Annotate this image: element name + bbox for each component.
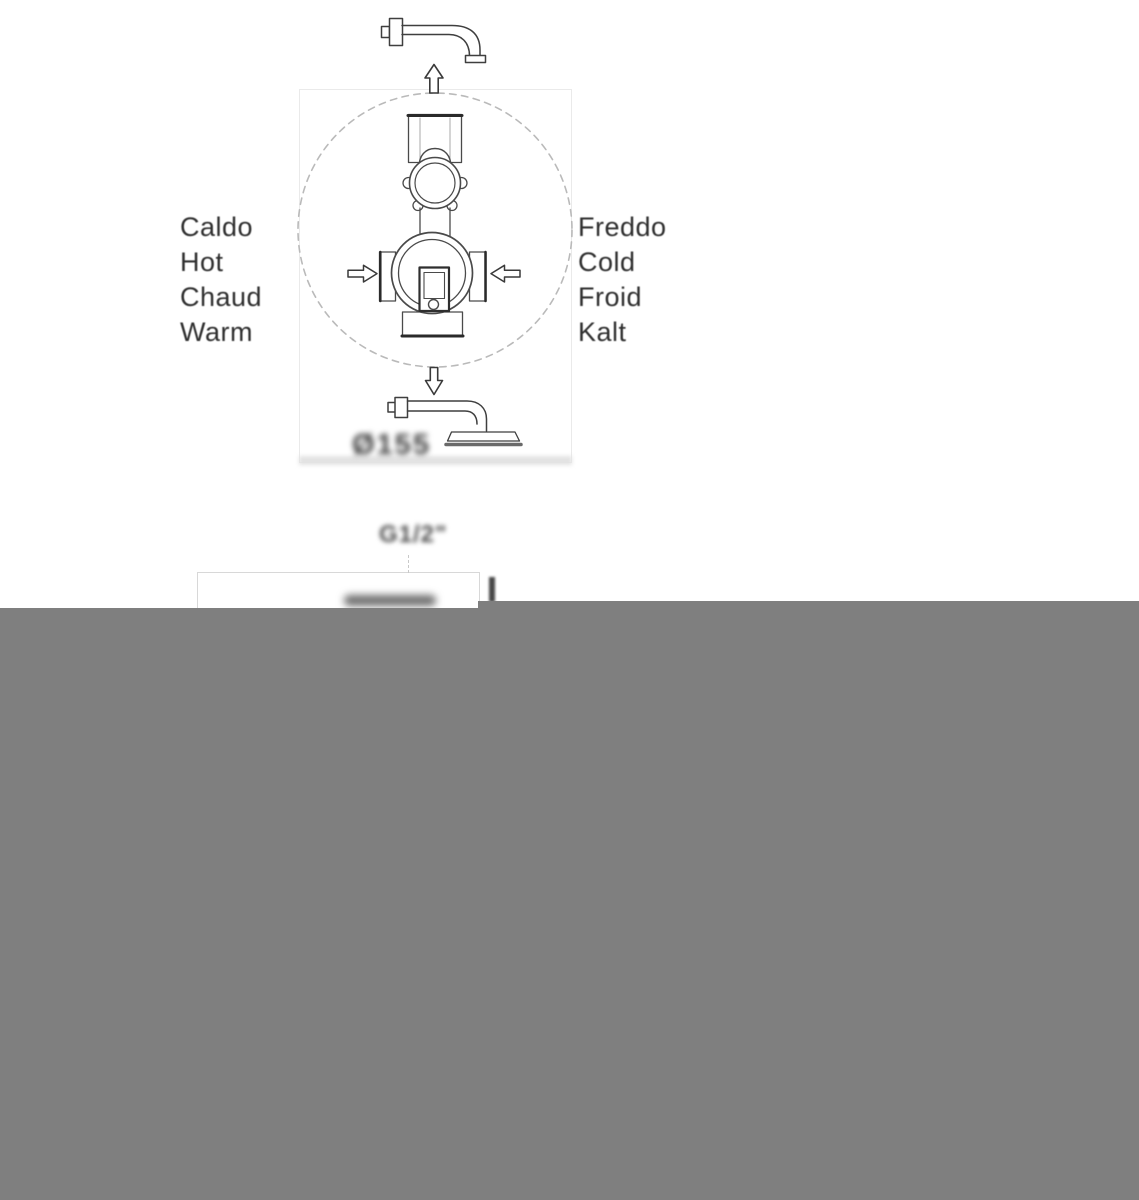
cold-water-labels: Freddo Cold Froid Kalt bbox=[578, 210, 667, 350]
cold-label-fr: Froid bbox=[578, 280, 667, 315]
showerhead-diameter-label: Ø155 bbox=[352, 429, 431, 462]
cold-label-en: Cold bbox=[578, 245, 667, 280]
hot-water-labels: Caldo Hot Chaud Warm bbox=[180, 210, 262, 350]
thread-size-label: G1/2" bbox=[379, 521, 447, 549]
installation-diagram-page: Caldo Hot Chaud Warm Freddo Cold Froid K… bbox=[0, 0, 1139, 1200]
cold-inlet-arrow-icon bbox=[491, 265, 520, 282]
flow-down-arrow-icon bbox=[426, 368, 443, 395]
cold-label-it: Freddo bbox=[578, 210, 667, 245]
lower-diagram-frame bbox=[197, 572, 480, 609]
thread-leader-line bbox=[408, 555, 409, 573]
flow-up-arrow-icon bbox=[425, 65, 443, 94]
redacted-region bbox=[0, 608, 1139, 1200]
dimension-tick-mark bbox=[489, 577, 495, 602]
hot-inlet-arrow-icon bbox=[348, 265, 377, 282]
top-shower-arm-icon bbox=[382, 19, 486, 63]
cold-label-de: Kalt bbox=[578, 315, 667, 350]
thermostatic-valve-icon bbox=[380, 115, 487, 337]
cropped-drawing-fragment bbox=[344, 595, 436, 606]
valve-diagram-lineart bbox=[0, 0, 1139, 612]
hot-label-en: Hot bbox=[180, 245, 262, 280]
hot-label-de: Warm bbox=[180, 315, 262, 350]
hot-label-fr: Chaud bbox=[180, 280, 262, 315]
hot-label-it: Caldo bbox=[180, 210, 262, 245]
